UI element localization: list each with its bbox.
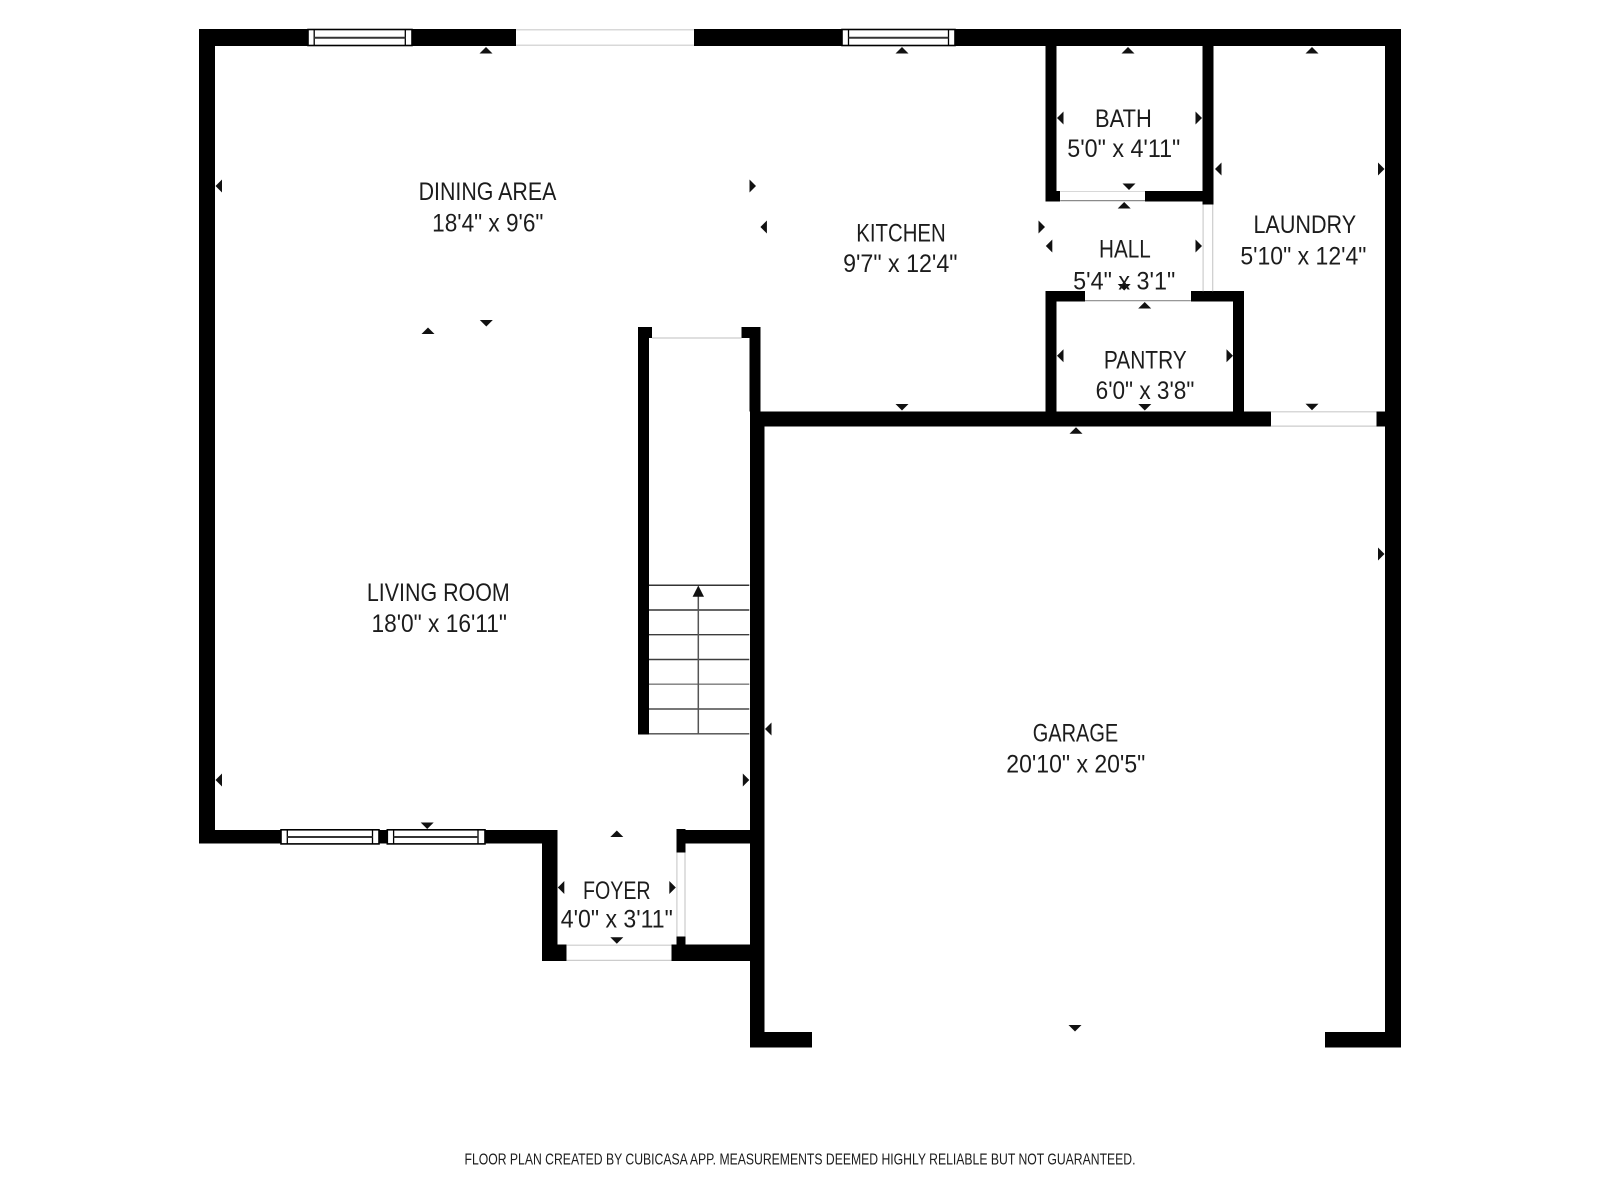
svg-text:6'0" x 3'8": 6'0" x 3'8" (1096, 377, 1195, 405)
svg-text:5'0" x 4'11": 5'0" x 4'11" (1067, 135, 1180, 163)
svg-text:20'10" x 20'5": 20'10" x 20'5" (1006, 750, 1145, 778)
svg-text:4'0" x 3'11": 4'0" x 3'11" (561, 905, 673, 933)
svg-text:PANTRY: PANTRY (1104, 347, 1187, 375)
svg-text:18'4" x 9'6": 18'4" x 9'6" (432, 209, 543, 237)
svg-text:18'0" x 16'11": 18'0" x 16'11" (371, 610, 507, 638)
svg-text:9'7" x 12'4": 9'7" x 12'4" (843, 250, 957, 278)
svg-text:GARAGE: GARAGE (1033, 719, 1119, 747)
svg-text:DINING AREA: DINING AREA (419, 178, 557, 206)
svg-text:5'10" x 12'4": 5'10" x 12'4" (1240, 243, 1366, 271)
svg-text:KITCHEN: KITCHEN (856, 220, 946, 248)
svg-text:FOYER: FOYER (583, 877, 651, 905)
svg-text:BATH: BATH (1095, 105, 1152, 133)
svg-text:LAUNDRY: LAUNDRY (1253, 211, 1356, 239)
svg-text:5'4" x 3'1": 5'4" x 3'1" (1073, 267, 1175, 295)
svg-text:HALL: HALL (1099, 236, 1151, 264)
svg-text:LIVING ROOM: LIVING ROOM (367, 579, 510, 607)
svg-text:FLOOR PLAN CREATED BY CUBICASA: FLOOR PLAN CREATED BY CUBICASA APP. MEAS… (465, 1152, 1136, 1169)
